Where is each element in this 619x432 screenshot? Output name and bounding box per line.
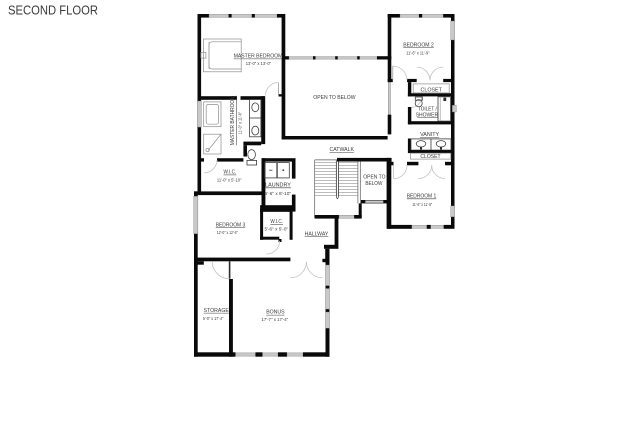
- svg-text:5'-6" x 5'-0": 5'-6" x 5'-0": [265, 227, 289, 232]
- svg-text:BELOW: BELOW: [365, 181, 383, 187]
- svg-text:13'-0" x 13'-0": 13'-0" x 13'-0": [246, 61, 272, 66]
- svg-text:11'-0" x 5'-10": 11'-0" x 5'-10": [217, 178, 242, 183]
- svg-text:5'-6" x 8'-10": 5'-6" x 8'-10": [265, 191, 292, 196]
- svg-text:5'-0" x 17'-4": 5'-0" x 17'-4": [203, 316, 224, 321]
- svg-text:CLOSET: CLOSET: [421, 87, 443, 93]
- svg-text:BONUS: BONUS: [266, 310, 284, 316]
- svg-text:MASTER BATHROOM: MASTER BATHROOM: [230, 96, 236, 146]
- svg-text:11'-6" x 11'-9": 11'-6" x 11'-9": [406, 50, 429, 55]
- svg-text:CLOSET: CLOSET: [420, 154, 441, 160]
- svg-text:12'-0" x 12'-6": 12'-0" x 12'-6": [217, 230, 238, 235]
- svg-text:17'-7" x 17'-4": 17'-7" x 17'-4": [261, 317, 288, 322]
- svg-text:SECOND FLOOR: SECOND FLOOR: [8, 4, 98, 18]
- svg-text:OPEN TO BELOW: OPEN TO BELOW: [313, 95, 356, 101]
- svg-text:11'-0" x 11'-6": 11'-0" x 11'-6": [238, 112, 243, 135]
- svg-text:11'-6" x 11'-8": 11'-6" x 11'-8": [412, 202, 432, 207]
- svg-text:BEDROOM 1: BEDROOM 1: [407, 193, 437, 199]
- svg-text:OPEN TO: OPEN TO: [363, 175, 386, 181]
